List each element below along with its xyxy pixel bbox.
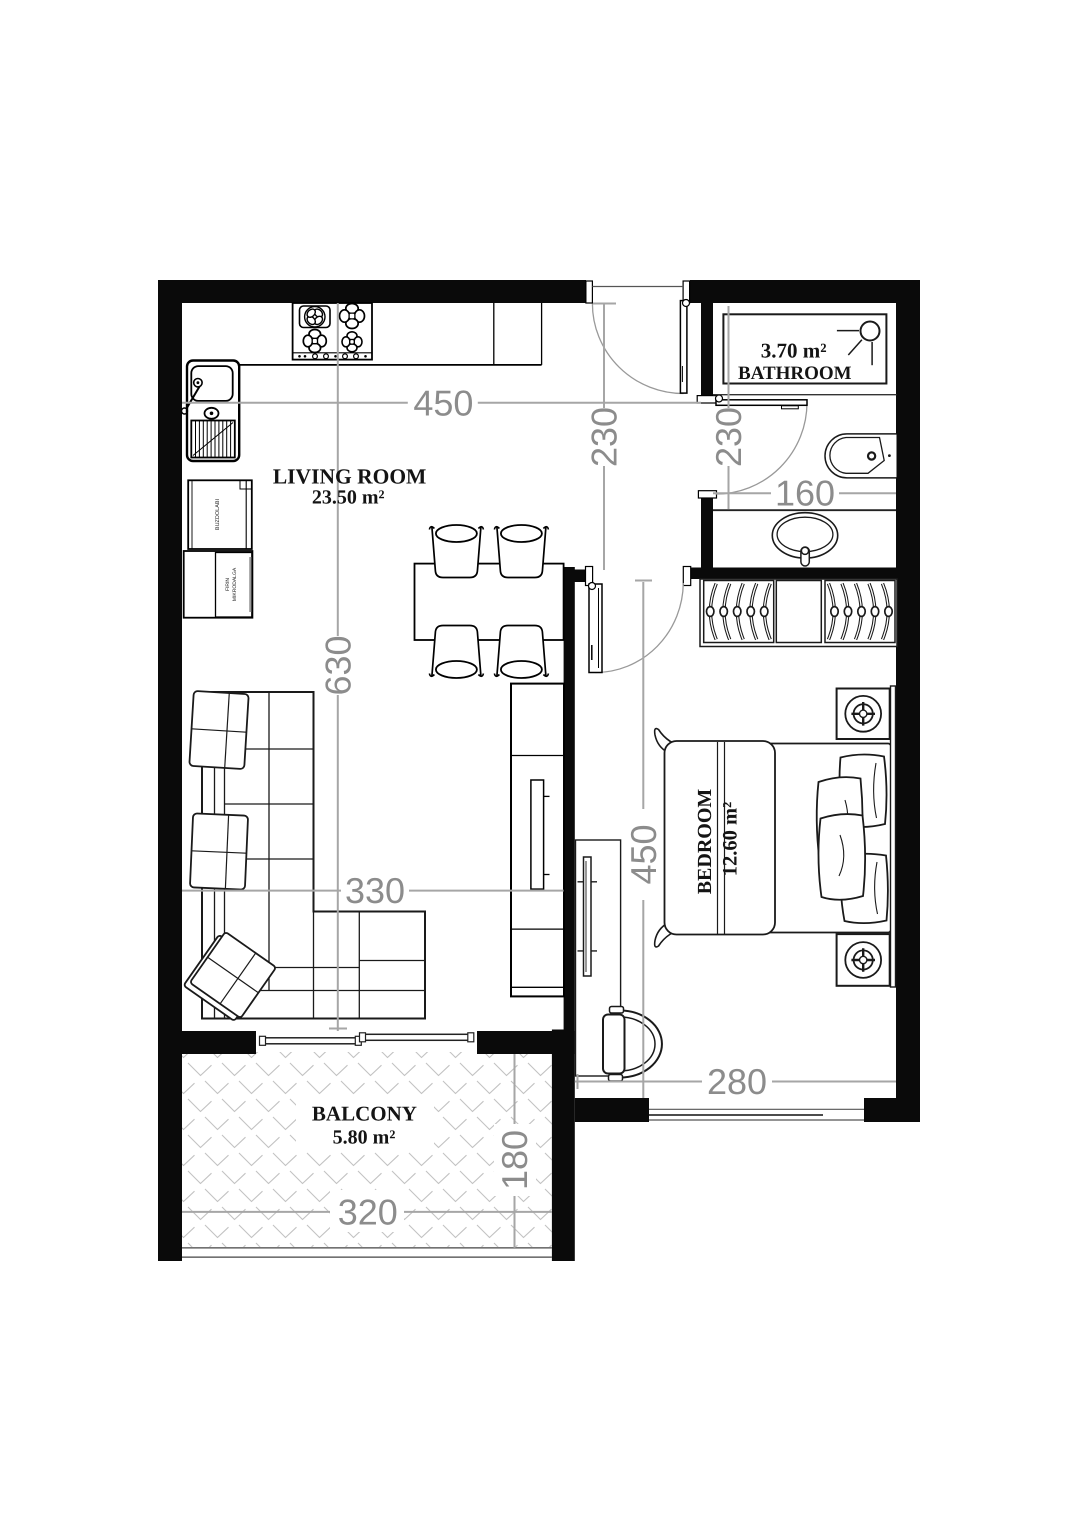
svg-text:180: 180: [494, 1130, 535, 1190]
svg-text:23.50 m²: 23.50 m²: [312, 487, 385, 509]
svg-text:280: 280: [707, 1061, 767, 1102]
svg-text:12.60 m²: 12.60 m²: [720, 802, 742, 876]
svg-text:450: 450: [623, 824, 664, 884]
svg-text:450: 450: [413, 382, 473, 423]
svg-text:LIVING ROOM: LIVING ROOM: [273, 464, 427, 488]
svg-text:3.70 m²: 3.70 m²: [761, 339, 827, 363]
svg-text:330: 330: [345, 870, 405, 911]
svg-text:BEDROOM: BEDROOM: [694, 789, 716, 895]
svg-text:630: 630: [317, 635, 358, 695]
svg-text:FIRIN: FIRIN: [225, 578, 231, 591]
svg-text:160: 160: [775, 473, 835, 514]
svg-text:230: 230: [584, 407, 625, 467]
svg-text:320: 320: [338, 1191, 398, 1232]
svg-text:BATHROOM: BATHROOM: [738, 363, 852, 384]
svg-text:MIKRODALGA: MIKRODALGA: [232, 567, 238, 601]
svg-text:BUZDOLABI: BUZDOLABI: [215, 498, 221, 530]
svg-text:BALCONY: BALCONY: [312, 1101, 417, 1125]
svg-text:230: 230: [708, 407, 749, 467]
svg-text:5.80 m²: 5.80 m²: [333, 1127, 396, 1149]
